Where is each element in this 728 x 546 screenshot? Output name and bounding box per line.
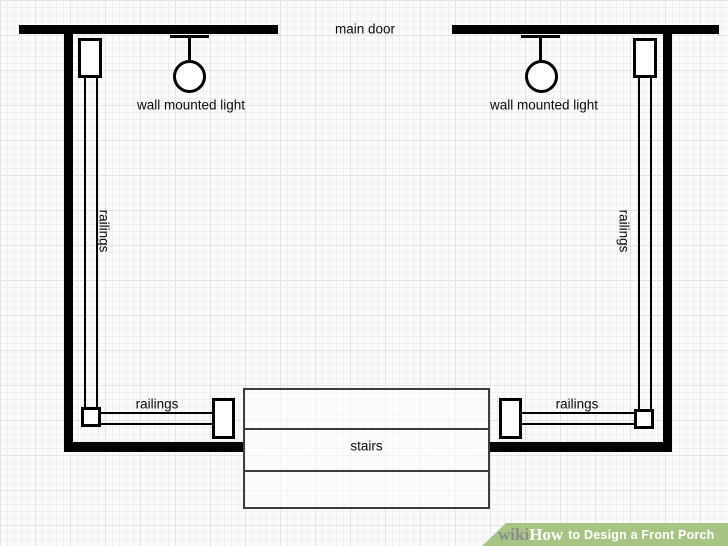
light-stem-right (539, 37, 542, 62)
wikihow-logo-how: How (529, 525, 563, 545)
wall-right (663, 25, 672, 452)
stairs-box: stairs (243, 388, 490, 509)
railing-post-corner-right (634, 409, 654, 429)
light-globe-icon-left (173, 60, 206, 93)
wall-bottom-left (64, 442, 243, 452)
railings-label-left-vertical: railings (97, 210, 112, 253)
main-door-label: main door (335, 22, 395, 37)
wall-top-left (19, 25, 278, 34)
watermark-title: to Design a Front Porch (568, 528, 714, 542)
wall-mounted-light-label-left: wall mounted light (137, 98, 245, 113)
railing-bottom-left (100, 412, 213, 425)
wikihow-watermark-banner: wikiHow to Design a Front Porch (482, 523, 728, 546)
light-globe-icon-right (525, 60, 558, 93)
stair-step-line-1 (245, 428, 488, 430)
railing-right-vertical (638, 78, 652, 410)
porch-plan-canvas: main door wall mounted light wall mounte… (0, 0, 728, 546)
railing-post-inner-left (212, 398, 235, 439)
wall-bottom-right (490, 442, 672, 452)
railings-label-right-vertical: railings (617, 210, 632, 253)
wall-left (64, 25, 73, 452)
railings-label-bottom-left: railings (136, 397, 179, 412)
wall-mounted-light-label-right: wall mounted light (490, 98, 598, 113)
railings-label-bottom-right: railings (556, 397, 599, 412)
railing-bottom-right (521, 412, 635, 425)
railing-post-inner-right (499, 398, 522, 439)
stair-step-line-2 (245, 470, 488, 472)
stairs-label: stairs (350, 439, 382, 454)
railing-post-top-right (633, 38, 657, 78)
wikihow-logo-wiki: wiki (498, 525, 529, 545)
wall-top-right (452, 25, 719, 34)
railing-post-corner-left (81, 407, 101, 427)
light-stem-left (188, 37, 191, 62)
railing-post-top-left (78, 38, 102, 78)
